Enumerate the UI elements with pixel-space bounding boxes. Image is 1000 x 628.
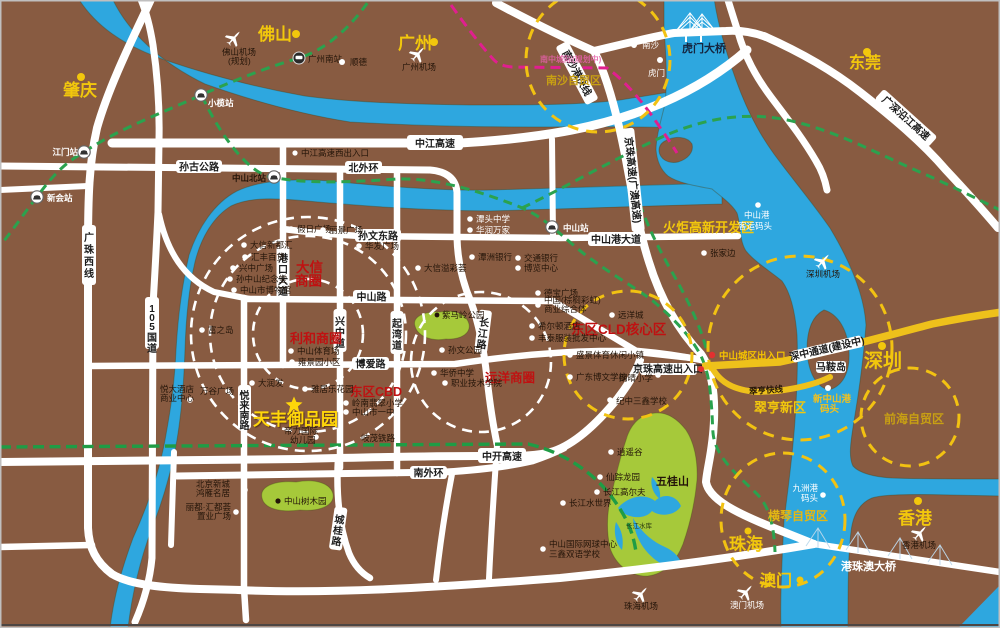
svg-text:潭头中学: 潭头中学: [476, 214, 511, 224]
svg-text:大信新都汇: 大信新都汇: [250, 240, 293, 250]
svg-text:汇丰百货: 汇丰百货: [251, 252, 286, 262]
svg-text:小榄站: 小榄站: [207, 98, 234, 108]
svg-text:悦来南路: 悦来南路: [239, 389, 251, 432]
svg-text:顺德: 顺德: [350, 57, 368, 67]
svg-text:江门站: 江门站: [52, 147, 78, 157]
svg-text:东区CBD: 东区CBD: [350, 384, 402, 399]
svg-text:中山城区出入口: 中山城区出入口: [719, 350, 786, 362]
svg-text:南中城际(规划中): 南中城际(规划中): [540, 54, 602, 64]
svg-text:五桂山: 五桂山: [656, 474, 689, 488]
svg-text:大信商圈: 大信商圈: [295, 259, 323, 289]
svg-text:盛景体育休闲小镇: 盛景体育休闲小镇: [576, 350, 645, 360]
svg-text:中江高速西出入口: 中江高速西出入口: [301, 148, 369, 158]
svg-text:中山市一中: 中山市一中: [352, 407, 395, 417]
svg-text:孙古公路: 孙古公路: [179, 161, 220, 174]
svg-text:华润万家: 华润万家: [476, 225, 511, 235]
svg-text:广州南站: 广州南站: [308, 54, 343, 64]
svg-text:潭洲银行: 潭洲银行: [478, 252, 513, 262]
svg-text:交通银行: 交通银行: [524, 253, 559, 263]
svg-text:张家边: 张家边: [710, 248, 736, 258]
svg-text:中山港: 中山港: [744, 210, 770, 220]
svg-text:珠海机场: 珠海机场: [624, 601, 658, 611]
svg-text:南外环: 南外环: [414, 467, 444, 480]
svg-text:(规划): (规划): [228, 56, 251, 66]
svg-text:朗晴小学: 朗晴小学: [619, 373, 654, 383]
svg-text:大润发: 大润发: [258, 378, 284, 388]
svg-text:香港机场: 香港机场: [902, 540, 936, 550]
svg-text:广珠西线: 广珠西线: [84, 231, 95, 280]
svg-text:富之岛: 富之岛: [208, 325, 234, 335]
svg-text:兴中广场: 兴中广场: [239, 263, 273, 273]
svg-text:码头: 码头: [820, 403, 840, 415]
svg-text:仙踪龙园: 仙踪龙园: [606, 472, 640, 482]
svg-text:利和商圈: 利和商圈: [290, 331, 342, 346]
svg-text:广州: 广州: [398, 33, 432, 53]
svg-text:肇庆: 肇庆: [63, 80, 97, 100]
svg-text:雍景园小区: 雍景园小区: [298, 357, 341, 367]
svg-text:纪中三鑫学校: 纪中三鑫学校: [616, 396, 668, 406]
svg-text:北外环: 北外环: [349, 162, 379, 175]
svg-text:岐茂铁路: 岐茂铁路: [361, 433, 396, 443]
svg-text:雅居乐花园: 雅居乐花园: [311, 384, 354, 394]
svg-text:孙中山纪念堂: 孙中山纪念堂: [236, 274, 287, 284]
svg-text:佛山: 佛山: [257, 24, 292, 44]
svg-text:孙文公园: 孙文公园: [448, 345, 482, 355]
svg-text:南沙: 南沙: [642, 40, 660, 50]
svg-text:珠海: 珠海: [729, 534, 763, 554]
svg-text:华发广场: 华发广场: [365, 241, 399, 251]
svg-text:中山北站: 中山北站: [232, 173, 267, 183]
svg-text:中山国际网球中心: 中山国际网球中心: [549, 539, 618, 549]
svg-text:长江水库: 长江水库: [626, 521, 653, 530]
svg-text:希尔顿酒店: 希尔顿酒店: [538, 321, 581, 331]
svg-text:九洲港: 九洲港: [792, 483, 818, 493]
svg-text:东莞: 东莞: [849, 53, 881, 72]
svg-text:虎门: 虎门: [648, 68, 665, 78]
svg-text:鸿雁名居: 鸿雁名居: [196, 488, 230, 498]
svg-text:中山体育场: 中山体育场: [297, 346, 340, 356]
svg-text:职业技术学院: 职业技术学院: [451, 378, 503, 388]
svg-text:远洋城: 远洋城: [618, 310, 644, 320]
svg-text:起湾道: 起湾道: [391, 317, 403, 352]
svg-text:丰泰服装批发中心: 丰泰服装批发中心: [538, 333, 607, 343]
svg-text:中开高速: 中开高速: [482, 450, 522, 463]
svg-text:翠亨新区: 翠亨新区: [754, 400, 806, 415]
svg-text:三鑫双语学校: 三鑫双语学校: [549, 549, 601, 559]
svg-text:南沙自贸区: 南沙自贸区: [546, 73, 601, 87]
svg-text:码头: 码头: [801, 493, 819, 503]
svg-text:中江高速: 中江高速: [415, 137, 455, 150]
svg-text:马鞍岛: 马鞍岛: [816, 361, 846, 374]
svg-text:商业综合体: 商业综合体: [544, 304, 587, 314]
svg-text:广州机场: 广州机场: [402, 62, 436, 72]
svg-text:置业广场: 置业广场: [197, 511, 231, 521]
svg-text:香港: 香港: [898, 508, 933, 528]
svg-text:商业中心: 商业中心: [160, 393, 195, 403]
svg-text:港珠澳大桥: 港珠澳大桥: [841, 559, 897, 573]
svg-text:中山站: 中山站: [563, 223, 589, 233]
svg-text:中山港大道: 中山港大道: [591, 233, 641, 246]
svg-text:中山树木园: 中山树木园: [284, 496, 327, 506]
svg-text:大信溢彩荟: 大信溢彩荟: [424, 263, 467, 273]
svg-text:逍遥谷: 逍遥谷: [617, 447, 643, 457]
svg-text:中山市博物馆: 中山市博物馆: [240, 285, 291, 295]
svg-text:虎门大桥: 虎门大桥: [682, 41, 727, 55]
svg-text:澳门机场: 澳门机场: [730, 600, 764, 610]
svg-text:长江高尔夫: 长江高尔夫: [603, 487, 646, 497]
svg-text:华侨中学: 华侨中学: [440, 368, 475, 378]
svg-text:前海自贸区: 前海自贸区: [884, 411, 944, 426]
svg-text:紫马岭公园: 紫马岭公园: [442, 310, 485, 320]
svg-text:博爱路: 博爱路: [356, 358, 387, 371]
svg-text:假日广场: 假日广场: [297, 224, 331, 234]
svg-text:博览中心: 博览中心: [524, 263, 559, 273]
svg-text:澳门: 澳门: [760, 571, 792, 590]
svg-text:长江水世界: 长江水世界: [569, 498, 612, 508]
svg-text:幼儿园: 幼儿园: [290, 435, 316, 445]
svg-text:丽景广场: 丽景广场: [329, 225, 363, 235]
svg-text:万谷广场: 万谷广场: [200, 386, 234, 396]
svg-text:深圳机场: 深圳机场: [806, 269, 840, 279]
svg-text:中山路: 中山路: [357, 291, 388, 304]
svg-text:深圳: 深圳: [864, 349, 902, 372]
svg-text:客运码头: 客运码头: [738, 221, 773, 231]
svg-text:新会站: 新会站: [47, 193, 73, 203]
svg-text:横琴自贸区: 横琴自贸区: [768, 508, 828, 523]
